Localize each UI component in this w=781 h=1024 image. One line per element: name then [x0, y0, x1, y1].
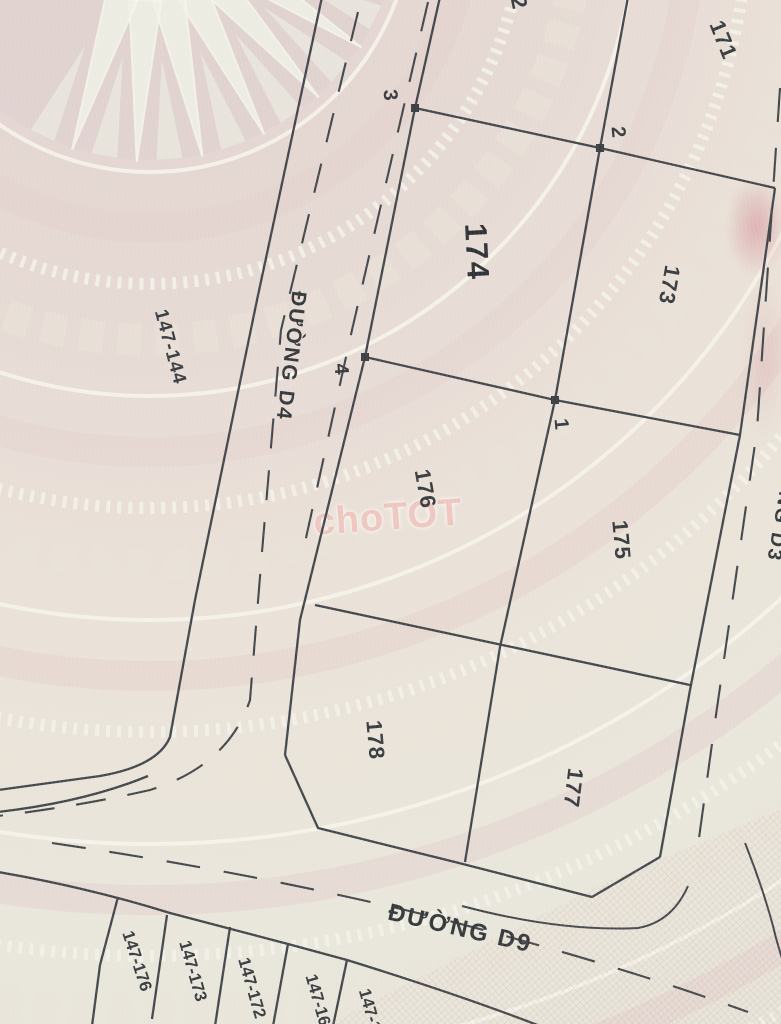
plot-label-176: 176 [411, 468, 440, 511]
junction-curve-east [745, 843, 781, 962]
plot-174-north-boundary [415, 108, 600, 148]
parcel-boundaries [0, 0, 781, 1024]
plot-column-divider [465, 400, 555, 862]
plot-label-177: 177 [560, 767, 587, 809]
vertex-label-1: 1 [551, 418, 572, 431]
neighbor-strip-divider [215, 927, 230, 1024]
plot-label-173: 173 [655, 264, 684, 307]
vertex-label-2: 2 [608, 126, 629, 139]
cadastral-map: choTOT 171 172 17 [0, 0, 781, 1024]
plot-label-174: 174 [460, 222, 494, 281]
plot-row-divider [315, 605, 690, 685]
neighbor-strip-divider [152, 915, 167, 1019]
plot-label-178: 178 [362, 719, 387, 760]
survey-point-2-marker [596, 144, 604, 152]
survey-point-3-marker [411, 104, 419, 112]
vertex-label-4: 4 [331, 363, 352, 376]
survey-point-1-marker [551, 396, 559, 404]
plot-174-south-boundary [365, 357, 555, 400]
plot-173-175-divider [555, 400, 740, 435]
vertex-label-3: 3 [380, 89, 401, 102]
plot-171-south-boundary [600, 148, 775, 188]
neighbor-strip-divider [273, 944, 288, 1024]
road-d4-east-edge [285, 0, 440, 755]
road-d4-corner-curb [0, 776, 148, 812]
plot-label-175: 175 [608, 519, 633, 560]
plot-174-east-boundary [555, 148, 600, 400]
road-d9-north-edge [285, 755, 660, 897]
survey-point-4-marker [361, 353, 369, 361]
neighbor-strip-divider [92, 897, 118, 1024]
road-d4-lane-dashes-left [0, 12, 358, 816]
road-d9-south-edge [0, 872, 540, 1024]
neighbor-strip-divider [333, 960, 347, 1024]
road-d3-centerline-dashes [699, 88, 780, 838]
